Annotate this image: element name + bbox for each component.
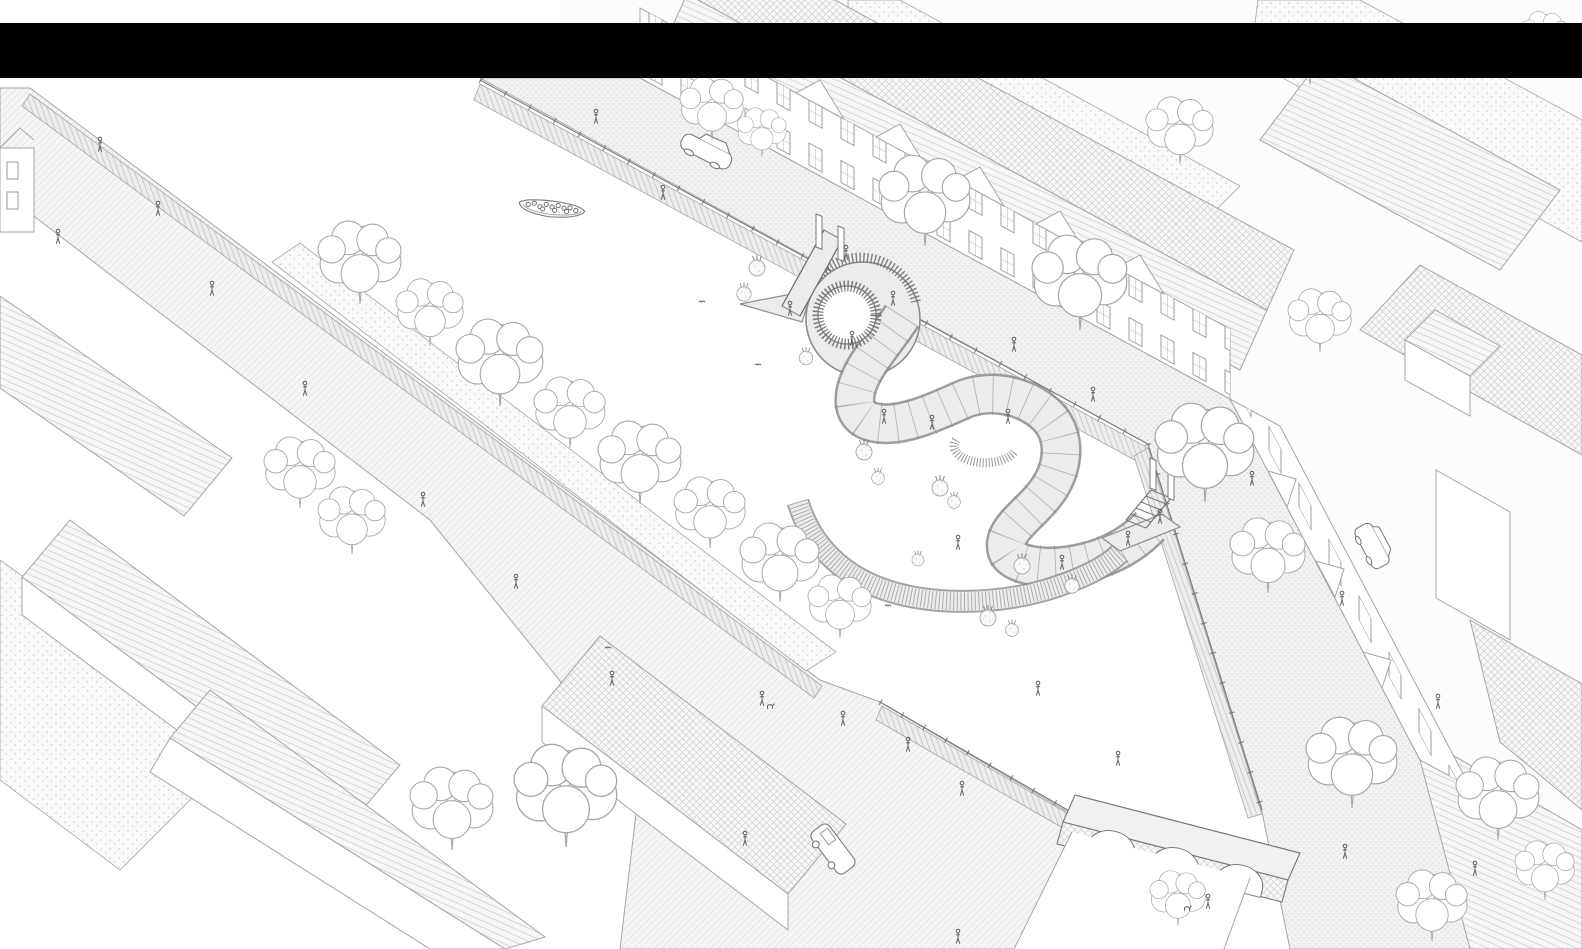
redaction-bar [0,23,1582,78]
axonometric-site-drawing [0,0,1582,949]
site-illustration [0,0,1582,949]
